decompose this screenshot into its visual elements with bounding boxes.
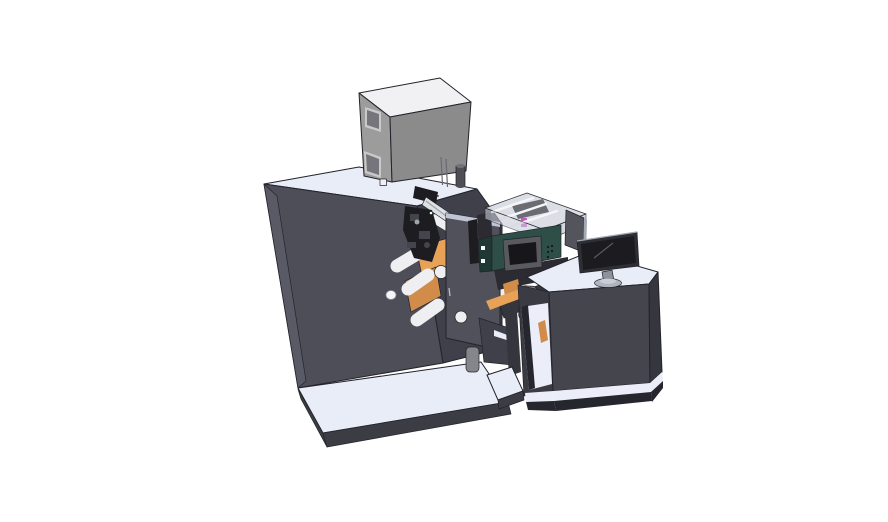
engine-button-dot <box>547 251 549 253</box>
engine-button-dot <box>551 250 553 252</box>
desk-base <box>526 401 556 411</box>
mechanism-glint <box>430 212 433 215</box>
engine-latch <box>481 246 485 250</box>
engine-end-face <box>478 236 492 272</box>
exhaust-cylinder-cap <box>456 164 465 168</box>
roller-end-cap <box>455 311 467 323</box>
engine-button-dot <box>547 256 549 258</box>
cad-render-canvas <box>0 0 888 522</box>
engine-button-dot <box>551 245 553 247</box>
electrical-box <box>359 78 471 188</box>
sensor-bracket-small <box>466 347 479 372</box>
exhaust-cylinder <box>456 166 465 186</box>
exhaust-cylinder-base <box>456 184 465 188</box>
monitor-base-top <box>600 278 616 284</box>
cabinet-handle <box>386 291 396 300</box>
desk-front-face <box>549 284 650 391</box>
operator-desk <box>518 252 663 411</box>
mechanism-knob <box>424 242 430 248</box>
engine-touchscreen <box>508 242 537 265</box>
mechanism-block <box>419 231 430 239</box>
engine-button-dot <box>547 246 549 248</box>
mechanism-knob <box>415 220 420 225</box>
mechanism-block <box>407 242 416 248</box>
machine-render <box>0 0 888 522</box>
box-label-plate <box>380 179 387 186</box>
engine-latch <box>481 259 485 263</box>
